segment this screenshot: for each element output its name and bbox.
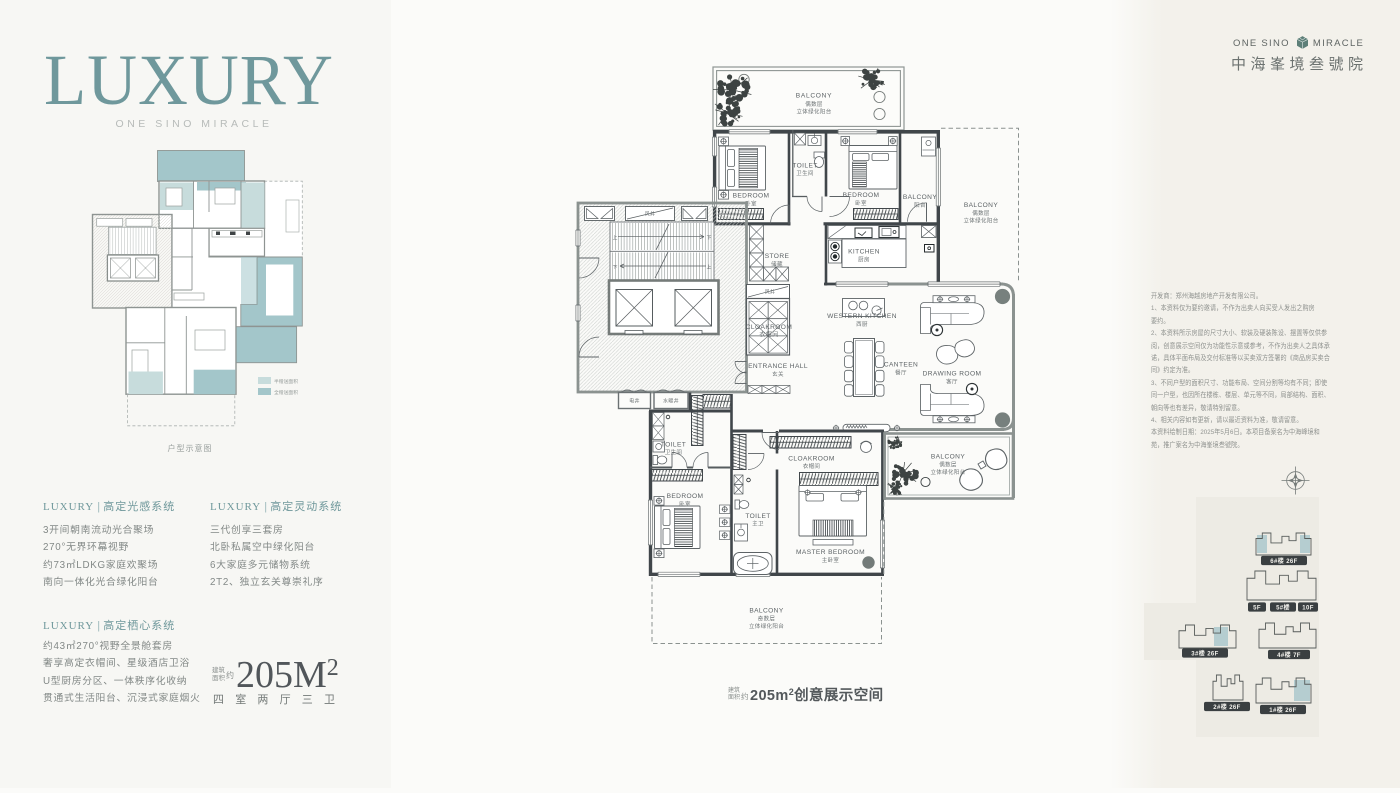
svg-text:上: 上 bbox=[707, 263, 712, 270]
svg-text:10F: 10F bbox=[1302, 606, 1314, 612]
svg-text:6#楼 26F: 6#楼 26F bbox=[1270, 557, 1297, 565]
svg-text:TOILET: TOILET bbox=[792, 163, 817, 170]
svg-text:上: 上 bbox=[613, 234, 618, 241]
svg-text:卧室: 卧室 bbox=[855, 199, 867, 207]
svg-text:奇数层: 奇数层 bbox=[758, 614, 776, 622]
svg-text:DRAWING ROOM: DRAWING ROOM bbox=[923, 371, 982, 378]
svg-text:5#楼: 5#楼 bbox=[1276, 604, 1290, 612]
svg-text:CLOAKROOM: CLOAKROOM bbox=[746, 324, 792, 331]
svg-text:MASTER BEDROOM: MASTER BEDROOM bbox=[796, 549, 865, 556]
svg-text:5F: 5F bbox=[1253, 606, 1261, 612]
svg-text:偶数层: 偶数层 bbox=[972, 209, 990, 217]
svg-text:CANTEEN: CANTEEN bbox=[884, 362, 918, 369]
svg-text:BEDROOM: BEDROOM bbox=[667, 493, 704, 500]
svg-text:偶数层: 偶数层 bbox=[939, 460, 957, 468]
svg-text:全赠送面积: 全赠送面积 bbox=[274, 389, 298, 396]
svg-text:BEDROOM: BEDROOM bbox=[843, 192, 880, 199]
svg-text:衣帽间: 衣帽间 bbox=[803, 462, 821, 470]
svg-text:BALCONY: BALCONY bbox=[796, 93, 832, 100]
svg-text:TOILET: TOILET bbox=[745, 513, 770, 520]
svg-text:BALCONY: BALCONY bbox=[931, 454, 966, 461]
svg-text:BALCONY: BALCONY bbox=[903, 194, 938, 201]
svg-text:BEDROOM: BEDROOM bbox=[733, 193, 770, 200]
svg-text:卫生间: 卫生间 bbox=[796, 169, 814, 177]
svg-text:餐厅: 餐厅 bbox=[895, 368, 907, 376]
svg-text:4#楼 7F: 4#楼 7F bbox=[1277, 651, 1301, 659]
svg-text:卧室: 卧室 bbox=[679, 500, 691, 508]
svg-text:CLOAKROOM: CLOAKROOM bbox=[788, 456, 834, 463]
svg-text:水暖井: 水暖井 bbox=[663, 398, 679, 405]
svg-text:客厅: 客厅 bbox=[946, 377, 958, 385]
svg-text:半赠送面积: 半赠送面积 bbox=[274, 378, 298, 385]
svg-text:下: 下 bbox=[613, 264, 618, 270]
svg-text:风井: 风井 bbox=[645, 211, 656, 218]
svg-text:偶数层: 偶数层 bbox=[805, 100, 823, 108]
svg-text:BALCONY: BALCONY bbox=[749, 608, 784, 615]
svg-text:立体绿化阳台: 立体绿化阳台 bbox=[796, 107, 831, 115]
svg-text:TOILET: TOILET bbox=[661, 442, 686, 449]
svg-text:3#楼 26F: 3#楼 26F bbox=[1191, 650, 1218, 658]
svg-text:西厨: 西厨 bbox=[856, 321, 868, 328]
svg-text:储藏: 储藏 bbox=[771, 260, 783, 268]
svg-text:主卧室: 主卧室 bbox=[822, 556, 840, 564]
svg-text:立体绿化阳台: 立体绿化阳台 bbox=[963, 216, 998, 224]
svg-text:STORE: STORE bbox=[765, 253, 790, 260]
svg-text:立体绿化阳台: 立体绿化阳台 bbox=[749, 622, 784, 630]
svg-text:厨房: 厨房 bbox=[858, 255, 870, 263]
svg-text:ENTRANCE HALL: ENTRANCE HALL bbox=[748, 363, 808, 370]
svg-text:2#楼 26F: 2#楼 26F bbox=[1213, 703, 1240, 711]
svg-text:电井: 电井 bbox=[629, 398, 640, 405]
svg-text:1#楼 26F: 1#楼 26F bbox=[1269, 706, 1296, 714]
svg-text:WESTERN KITCHEN: WESTERN KITCHEN bbox=[827, 313, 897, 320]
svg-text:KITCHEN: KITCHEN bbox=[848, 249, 880, 256]
svg-text:风井: 风井 bbox=[765, 289, 776, 296]
svg-text:下: 下 bbox=[707, 235, 712, 241]
svg-text:BALCONY: BALCONY bbox=[964, 202, 999, 209]
svg-text:阳台: 阳台 bbox=[914, 201, 926, 209]
svg-text:玄关: 玄关 bbox=[772, 370, 784, 378]
svg-text:主卫: 主卫 bbox=[752, 520, 764, 528]
svg-text:立体绿化阳台: 立体绿化阳台 bbox=[930, 468, 965, 476]
svg-text:衣帽间: 衣帽间 bbox=[759, 331, 778, 339]
